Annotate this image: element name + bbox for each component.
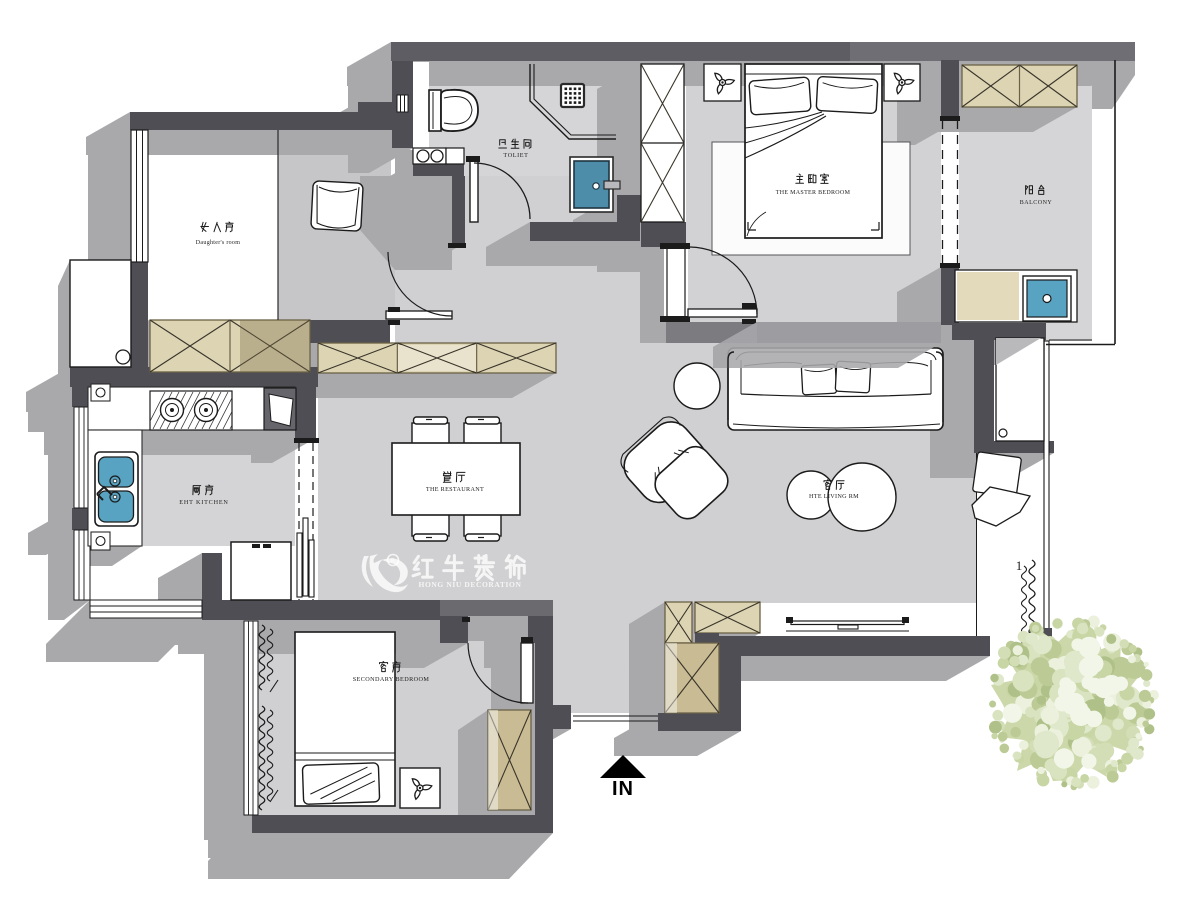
svg-text:Daughter's room: Daughter's room bbox=[196, 240, 240, 246]
svg-text:HONG NIU DECORATION: HONG NIU DECORATION bbox=[419, 580, 522, 589]
svg-text:1: 1 bbox=[1016, 558, 1023, 573]
svg-text:EHT KITCHEN: EHT KITCHEN bbox=[179, 499, 228, 506]
svg-text:THE MASTER BEDROOM: THE MASTER BEDROOM bbox=[776, 190, 851, 196]
svg-text:TOLIET: TOLIET bbox=[503, 152, 528, 159]
svg-text:BALCONY: BALCONY bbox=[1020, 200, 1053, 206]
svg-text:THE RESTAURANT: THE RESTAURANT bbox=[426, 486, 484, 493]
svg-text:IN: IN bbox=[612, 778, 634, 800]
svg-text:HTE LIVING RM: HTE LIVING RM bbox=[809, 493, 859, 500]
svg-text:SECONDARY BEDROOM: SECONDARY BEDROOM bbox=[353, 676, 430, 683]
svg-text:R: R bbox=[391, 557, 396, 565]
